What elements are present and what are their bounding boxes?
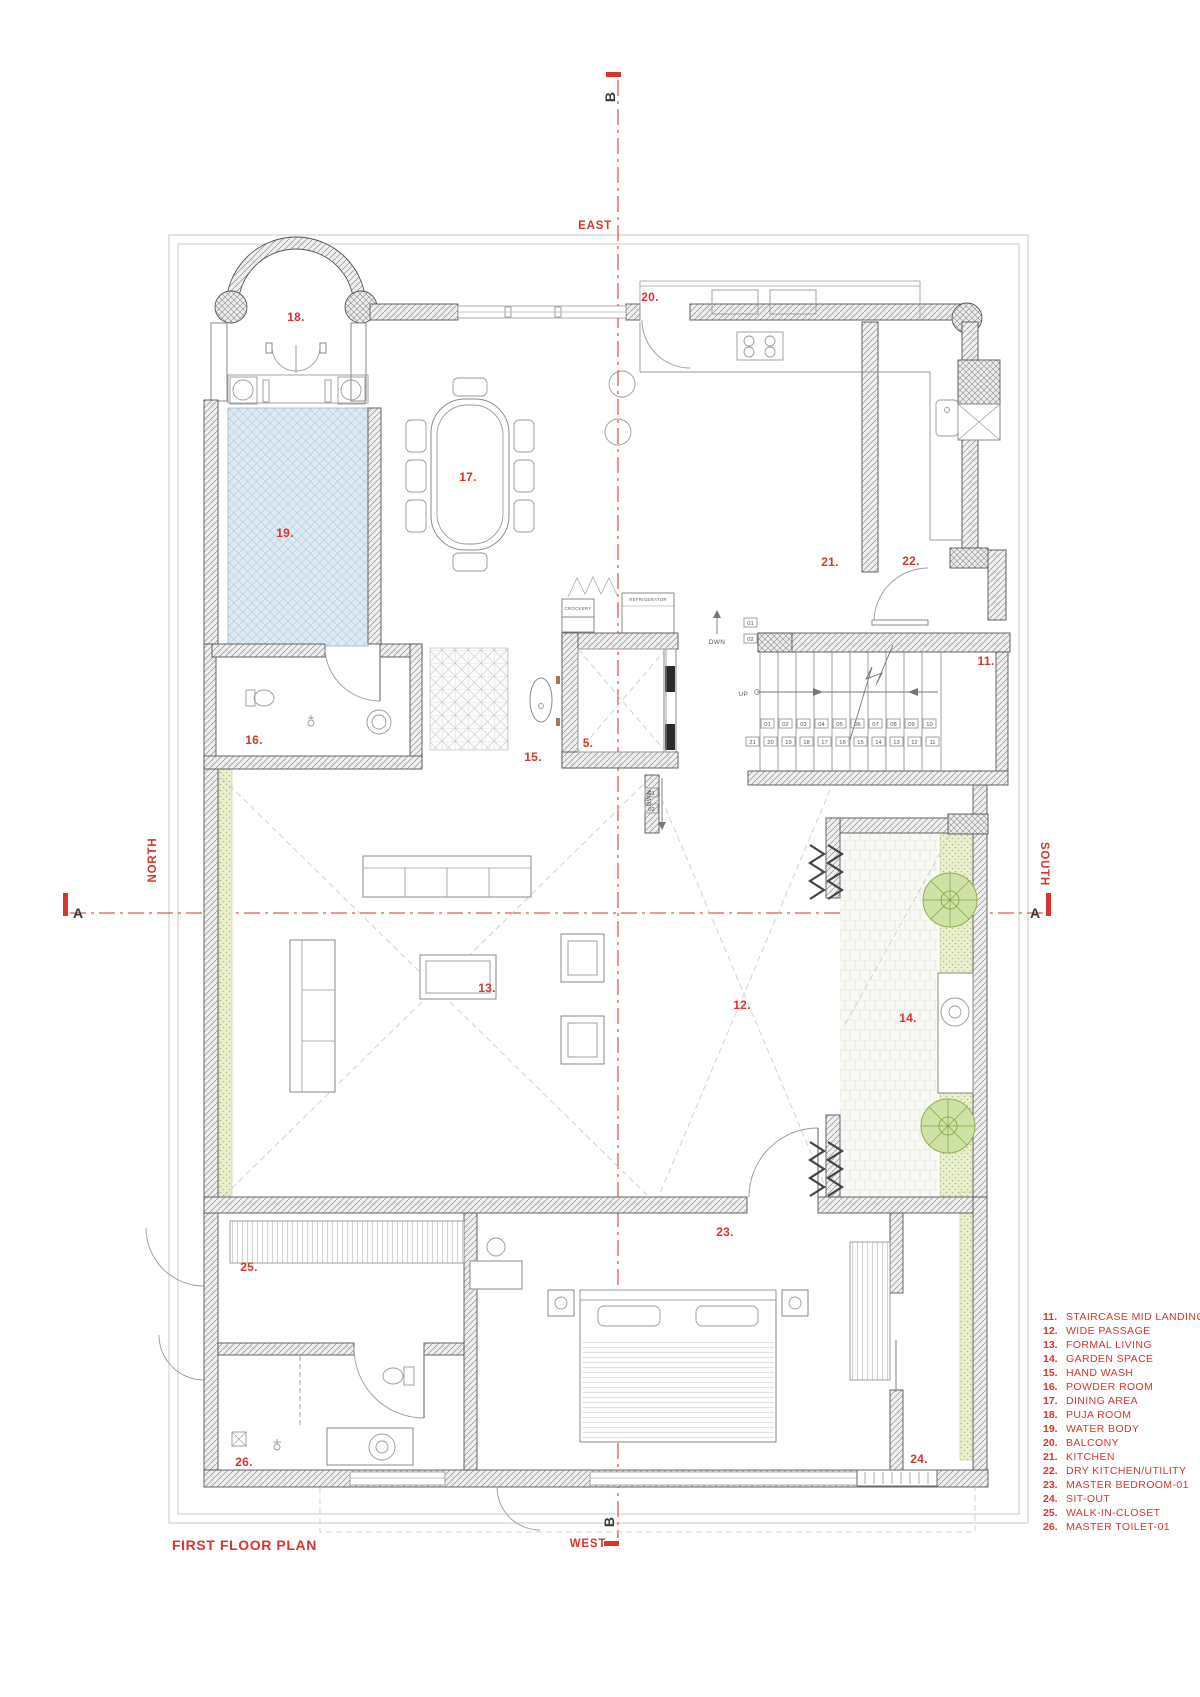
kitchen-counter — [640, 322, 962, 540]
mandir-icon — [568, 577, 618, 597]
svg-text:11.: 11. — [1043, 1311, 1057, 1323]
chair-icon — [406, 500, 426, 532]
svg-text:12: 12 — [911, 740, 917, 746]
side-door-arc-1 — [146, 1228, 204, 1286]
chair-icon — [514, 420, 534, 452]
closet-shelving — [230, 1221, 464, 1263]
label-master-bedroom: 23. — [716, 1225, 734, 1239]
stair-treads — [760, 652, 941, 771]
round-column-icon — [215, 291, 247, 323]
svg-text:BALCONY: BALCONY — [1066, 1437, 1119, 1449]
svg-text:25.: 25. — [1043, 1507, 1058, 1519]
label-walk-in-closet: 25. — [240, 1260, 258, 1274]
bedroom-furniture — [470, 1238, 890, 1442]
svg-text:04: 04 — [818, 722, 825, 728]
svg-text:HAND WASH: HAND WASH — [1066, 1367, 1133, 1379]
section-a-right-tick — [1046, 893, 1051, 916]
vanity-basin-icon — [327, 1428, 413, 1465]
svg-text:12.: 12. — [1043, 1325, 1058, 1337]
utility-door-leaf — [872, 620, 928, 625]
puja-double-door — [266, 343, 326, 373]
utility-door-arc — [874, 568, 928, 622]
label-dry-kitchen: 22. — [902, 554, 920, 568]
svg-text:15: 15 — [857, 740, 863, 746]
sink-icon — [936, 400, 958, 436]
section-marker-a-left: A — [73, 905, 83, 921]
stair-numbers-row2: 21 20 19 18 17 16 15 14 13 12 11 — [746, 737, 939, 746]
svg-text:03: 03 — [800, 722, 806, 728]
refrigerator-unit: REFRIGERATOR — [622, 593, 674, 633]
svg-text:STAIRCASE MID LANDING: STAIRCASE MID LANDING — [1066, 1311, 1200, 1323]
sofa-side — [290, 940, 335, 1092]
up-label: UP — [738, 691, 748, 698]
svg-text:18: 18 — [803, 740, 809, 746]
compass-south: SOUTH — [1038, 842, 1050, 886]
section-b-bottom-tick — [604, 1541, 619, 1546]
svg-text:09: 09 — [908, 722, 914, 728]
stair-dwn-west: DWN 01 02 — [709, 610, 757, 646]
elevator — [562, 633, 678, 768]
rear-door-arc — [497, 1487, 540, 1530]
tree-icon — [923, 873, 977, 927]
puja-platform — [228, 375, 368, 404]
garden-planter-bowl — [938, 973, 973, 1093]
compass-west: WEST — [570, 1538, 606, 1550]
legend: 11.STAIRCASE MID LANDING 12.WIDE PASSAGE… — [1043, 1311, 1200, 1533]
powder-room-fixtures — [246, 690, 391, 734]
svg-text:02: 02 — [782, 722, 788, 728]
label-water-body: 19. — [276, 526, 294, 540]
planter-strip-left — [219, 760, 232, 1198]
svg-text:19: 19 — [785, 740, 791, 746]
label-hand-wash: 15. — [524, 750, 542, 764]
floor-plan-drawing: B B A A EAST WEST NORTH SOUTH — [0, 0, 1200, 1697]
svg-text:13.: 13. — [1043, 1339, 1058, 1351]
floor-plan-sheet: B B A A EAST WEST NORTH SOUTH — [0, 0, 1200, 1697]
svg-text:SIT-OUT: SIT-OUT — [1066, 1493, 1110, 1505]
svg-text:10: 10 — [926, 722, 932, 728]
faucet-icon — [273, 1439, 281, 1450]
decor-floor-pattern — [430, 648, 508, 750]
section-marker-b-bottom: B — [601, 1517, 617, 1527]
basin-icon — [530, 678, 552, 722]
svg-text:POWDER ROOM: POWDER ROOM — [1066, 1381, 1153, 1393]
section-b-top-tick — [606, 72, 621, 77]
bedroom-door-arc — [749, 1128, 818, 1197]
svg-text:02: 02 — [648, 807, 654, 813]
svg-text:GARDEN SPACE: GARDEN SPACE — [1066, 1353, 1153, 1365]
label-garden: 14. — [899, 1011, 917, 1025]
duct-box — [958, 404, 1000, 440]
svg-text:MASTER TOILET-01: MASTER TOILET-01 — [1066, 1521, 1170, 1533]
svg-text:07: 07 — [872, 722, 878, 728]
svg-text:15.: 15. — [1043, 1367, 1058, 1379]
svg-text:WATER BODY: WATER BODY — [1066, 1423, 1139, 1435]
svg-text:WALK-IN-CLOSET: WALK-IN-CLOSET — [1066, 1507, 1161, 1519]
drawing-title: FIRST FLOOR PLAN — [172, 1537, 317, 1553]
chair-icon — [453, 378, 487, 396]
stool-icon — [487, 1238, 505, 1256]
counter-basin-icon — [367, 710, 391, 734]
compass-east: EAST — [578, 220, 612, 232]
nightstand-icon — [548, 1290, 574, 1316]
chair-icon — [453, 553, 487, 571]
section-marker-a-right: A — [1030, 905, 1040, 921]
passage-ceiling-lines — [658, 790, 830, 1198]
svg-text:21: 21 — [749, 740, 755, 746]
armchair-icon — [561, 934, 604, 982]
label-sit-out: 24. — [910, 1452, 928, 1466]
svg-text:05: 05 — [836, 722, 842, 728]
garden-paving — [840, 833, 938, 1197]
stove-icon — [737, 332, 783, 360]
svg-text:14: 14 — [875, 740, 882, 746]
toilet-fixtures — [232, 1356, 414, 1465]
label-kitchen: 21. — [821, 555, 839, 569]
svg-text:21.: 21. — [1043, 1451, 1058, 1463]
svg-text:MASTER BEDROOM-01: MASTER BEDROOM-01 — [1066, 1479, 1189, 1491]
svg-text:01: 01 — [764, 722, 770, 728]
projection-dashed-rect — [320, 1488, 975, 1532]
floor-drain-icon — [232, 1432, 246, 1446]
balcony-door-arc — [642, 320, 690, 368]
svg-text:17.: 17. — [1043, 1395, 1058, 1407]
powder-door-arc — [325, 650, 380, 701]
chair-icon — [514, 460, 534, 492]
svg-text:DINING AREA: DINING AREA — [1066, 1395, 1138, 1407]
sofa-long — [363, 856, 531, 897]
compass-north: NORTH — [147, 838, 159, 883]
label-balcony: 20. — [641, 290, 659, 304]
label-stair-landing: 11. — [978, 654, 995, 668]
wardrobe-icon — [850, 1242, 890, 1380]
svg-text:08: 08 — [890, 722, 896, 728]
label-formal-living: 13. — [478, 981, 496, 995]
crockery-unit: CROCKERY — [562, 599, 594, 632]
svg-text:FORMAL LIVING: FORMAL LIVING — [1066, 1339, 1152, 1351]
window-top — [458, 306, 626, 318]
tree-icon — [921, 1099, 975, 1153]
svg-text:18.: 18. — [1043, 1409, 1058, 1421]
dresser-icon — [470, 1238, 522, 1289]
faucet-icon — [308, 715, 314, 726]
svg-text:23.: 23. — [1043, 1479, 1058, 1491]
svg-text:KITCHEN: KITCHEN — [1066, 1451, 1115, 1463]
wc-icon — [383, 1367, 414, 1385]
svg-text:16: 16 — [839, 740, 845, 746]
window-bottom-2 — [590, 1472, 857, 1485]
chair-icon — [406, 420, 426, 452]
dwn-label: DWN — [709, 639, 725, 646]
armchair-icon — [561, 1016, 604, 1064]
bed-icon — [580, 1290, 776, 1442]
window-mullioned — [857, 1470, 937, 1486]
elevator-door — [665, 724, 675, 750]
svg-text:06: 06 — [854, 722, 860, 728]
svg-text:01: 01 — [648, 791, 654, 797]
section-a-left-tick — [63, 893, 68, 916]
label-wide-passage: 12. — [733, 998, 751, 1012]
stair-up-arrow — [755, 688, 939, 696]
label-lift: 5. — [583, 736, 594, 750]
svg-text:17: 17 — [821, 740, 827, 746]
svg-text:02: 02 — [747, 637, 753, 643]
svg-text:PUJA ROOM: PUJA ROOM — [1066, 1409, 1131, 1421]
svg-text:22.: 22. — [1043, 1465, 1058, 1477]
crockery-label: CROCKERY — [564, 606, 591, 611]
nightstand-icon — [782, 1290, 808, 1316]
chair-icon — [406, 460, 426, 492]
section-marker-b-top: B — [602, 92, 618, 102]
svg-text:24.: 24. — [1043, 1493, 1058, 1505]
svg-text:20: 20 — [767, 740, 773, 746]
svg-text:11: 11 — [929, 740, 935, 746]
window-bottom-1 — [350, 1472, 445, 1485]
handwash-basin — [530, 676, 560, 726]
side-table-icon — [609, 371, 635, 397]
label-puja: 18. — [287, 310, 305, 324]
water-body-area — [228, 408, 368, 646]
label-powder-room: 16. — [245, 733, 263, 747]
svg-text:14.: 14. — [1043, 1353, 1058, 1365]
refrigerator-label: REFRIGERATOR — [629, 597, 667, 602]
svg-text:WIDE PASSAGE: WIDE PASSAGE — [1066, 1325, 1151, 1337]
svg-text:13: 13 — [893, 740, 899, 746]
column-base-icon — [233, 380, 253, 400]
svg-text:19.: 19. — [1043, 1423, 1058, 1435]
elevator-door — [665, 666, 675, 692]
svg-text:DRY KITCHEN/UTILITY: DRY KITCHEN/UTILITY — [1066, 1465, 1186, 1477]
chair-icon — [514, 500, 534, 532]
svg-text:20.: 20. — [1043, 1437, 1058, 1449]
service-shaft — [958, 360, 1000, 404]
label-dining: 17. — [459, 470, 477, 484]
side-door-arc-2 — [159, 1335, 204, 1380]
svg-text:01: 01 — [747, 621, 753, 627]
label-master-toilet: 26. — [235, 1455, 253, 1469]
stair-numbers-row1: 01 02 03 04 05 06 07 08 09 10 — [761, 719, 936, 728]
svg-text:26.: 26. — [1043, 1521, 1058, 1533]
wc-icon — [246, 690, 274, 706]
svg-text:16.: 16. — [1043, 1381, 1058, 1393]
